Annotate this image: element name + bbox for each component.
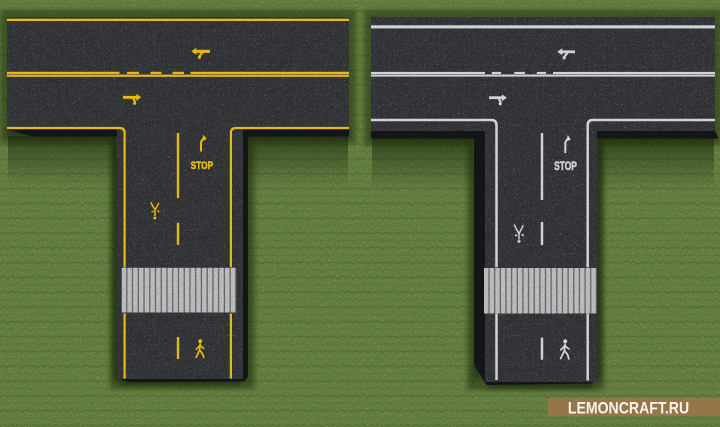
svg-text:LEMONCRAFT.RU: LEMONCRAFT.RU bbox=[568, 400, 689, 418]
